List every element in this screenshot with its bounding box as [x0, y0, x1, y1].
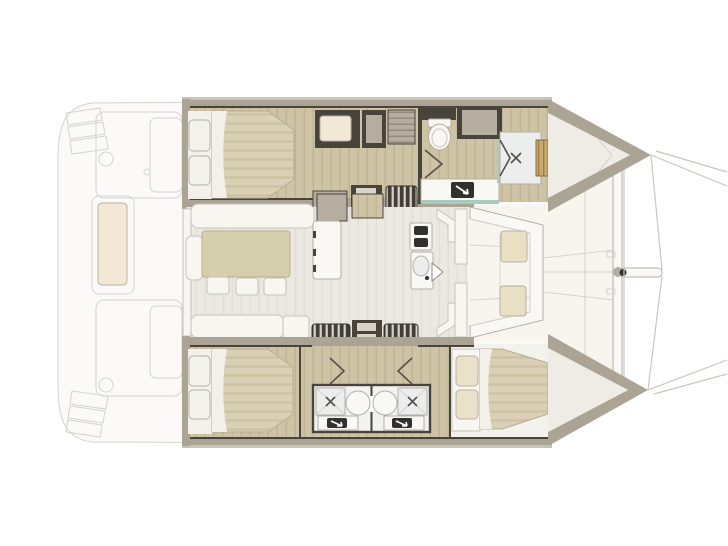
- basin-fwd: [373, 391, 397, 415]
- vanity-desk-top: [320, 116, 351, 141]
- guest-fwd-mattress: [480, 349, 548, 429]
- guest-fwd-pillow-1: [456, 356, 478, 386]
- teak-shower-bench: [536, 140, 548, 176]
- guest-aft-pillow-1: [189, 356, 210, 386]
- galley-island: [313, 221, 341, 279]
- bathroom-top-cabinet-1: [421, 106, 456, 120]
- island-hinge-2: [313, 249, 316, 256]
- bathroom-cabinet-door: [462, 110, 497, 135]
- catamaran-floor-plan: [0, 0, 728, 546]
- bowsprit-base-fitting: [620, 269, 627, 276]
- aft-bench-back: [191, 315, 284, 338]
- guest-berth-fwd: [452, 349, 548, 431]
- tall-locker-door: [366, 115, 382, 143]
- burner-1: [414, 226, 428, 235]
- galley-sink-bowl: [413, 256, 429, 276]
- island-hinge-1: [313, 231, 316, 238]
- owner-pillow-2: [189, 156, 210, 185]
- galley-wood-cabinet: [352, 194, 383, 218]
- hull-starboard: [182, 334, 648, 448]
- stool-3: [264, 278, 286, 295]
- guest-aft-pillow-2: [189, 390, 210, 419]
- saloon-table: [202, 231, 290, 277]
- aft-bench-seat: [283, 316, 309, 338]
- port-hull-outer-highlight: [182, 97, 552, 100]
- guest-berth-aft: [188, 349, 293, 434]
- owner-pillow-1: [189, 120, 210, 151]
- u-sofa-back: [191, 204, 314, 228]
- basin-aft: [346, 391, 370, 415]
- fwd-door-panel-bottom: [455, 283, 467, 337]
- vanity-glass-edge: [421, 200, 499, 204]
- stbd-hull-outer-highlight: [182, 445, 552, 448]
- stool-1: [207, 277, 229, 294]
- island-hinge-3: [313, 265, 316, 272]
- galley-faucet-dot: [425, 276, 429, 280]
- forestay-lines-top: [651, 151, 727, 186]
- forestay-lines-bottom: [648, 360, 727, 394]
- galley-top-counter: [317, 194, 347, 221]
- stool-2: [236, 278, 258, 295]
- stbd-hull-inner-wall: [182, 337, 474, 346]
- guest-fwd-pillow-2: [456, 390, 478, 419]
- saloon: [183, 194, 467, 354]
- shower-floor: [500, 132, 541, 184]
- fwd-door-panel-top: [455, 209, 467, 264]
- wardrobe-shelves: [388, 110, 415, 144]
- divider-shelf-1: [357, 323, 376, 331]
- forward-cockpit-cushion-1: [501, 231, 527, 262]
- forward-cockpit-cushion-2: [500, 286, 526, 316]
- aft-bench-cushion: [98, 203, 127, 285]
- floor-plan-drawing: [0, 0, 728, 546]
- owner-berth: [188, 111, 294, 199]
- burner-2: [414, 238, 428, 247]
- u-sofa-arm: [186, 236, 203, 280]
